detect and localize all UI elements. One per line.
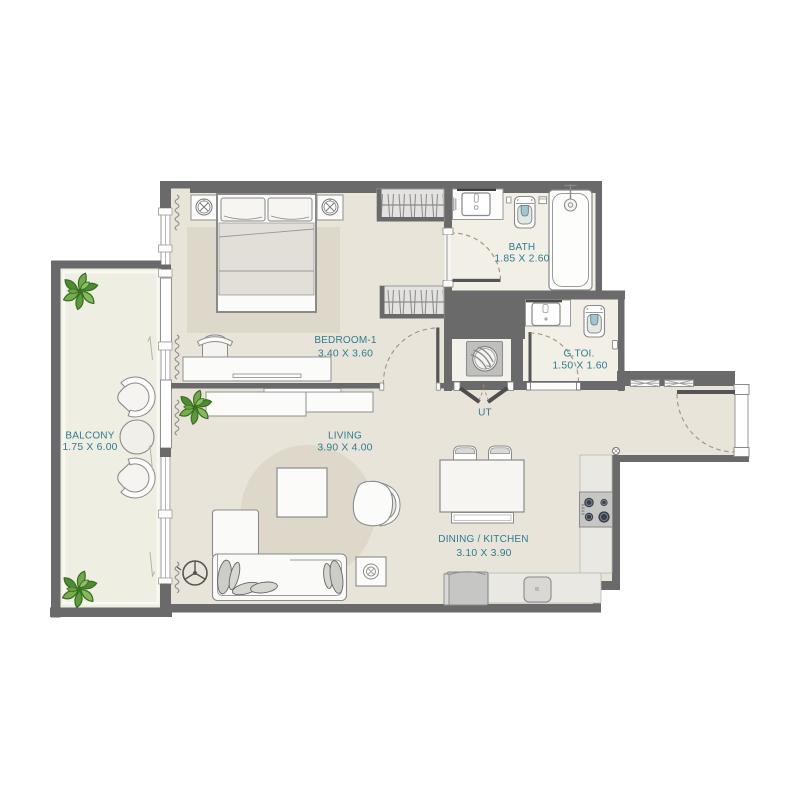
svg-text:3.40 X 3.60: 3.40 X 3.60 (318, 349, 373, 360)
svg-text:3.90 X 4.00: 3.90 X 4.00 (317, 443, 372, 454)
svg-text:BALCONY: BALCONY (65, 431, 114, 442)
svg-text:3.10 X 3.90: 3.10 X 3.90 (456, 548, 511, 559)
svg-text:UT: UT (478, 408, 492, 419)
svg-text:G.TOI.: G.TOI. (563, 349, 594, 360)
svg-text:BATH: BATH (509, 242, 536, 253)
svg-text:BEDROOM-1: BEDROOM-1 (314, 335, 377, 346)
svg-text:1.85 X 2.60: 1.85 X 2.60 (494, 254, 549, 265)
svg-text:1.50 X 1.60: 1.50 X 1.60 (552, 361, 607, 372)
svg-text:1.75 X 6.00: 1.75 X 6.00 (62, 442, 117, 453)
svg-text:LIVING: LIVING (328, 431, 362, 442)
svg-text:DINING / KITCHEN: DINING / KITCHEN (438, 534, 528, 545)
